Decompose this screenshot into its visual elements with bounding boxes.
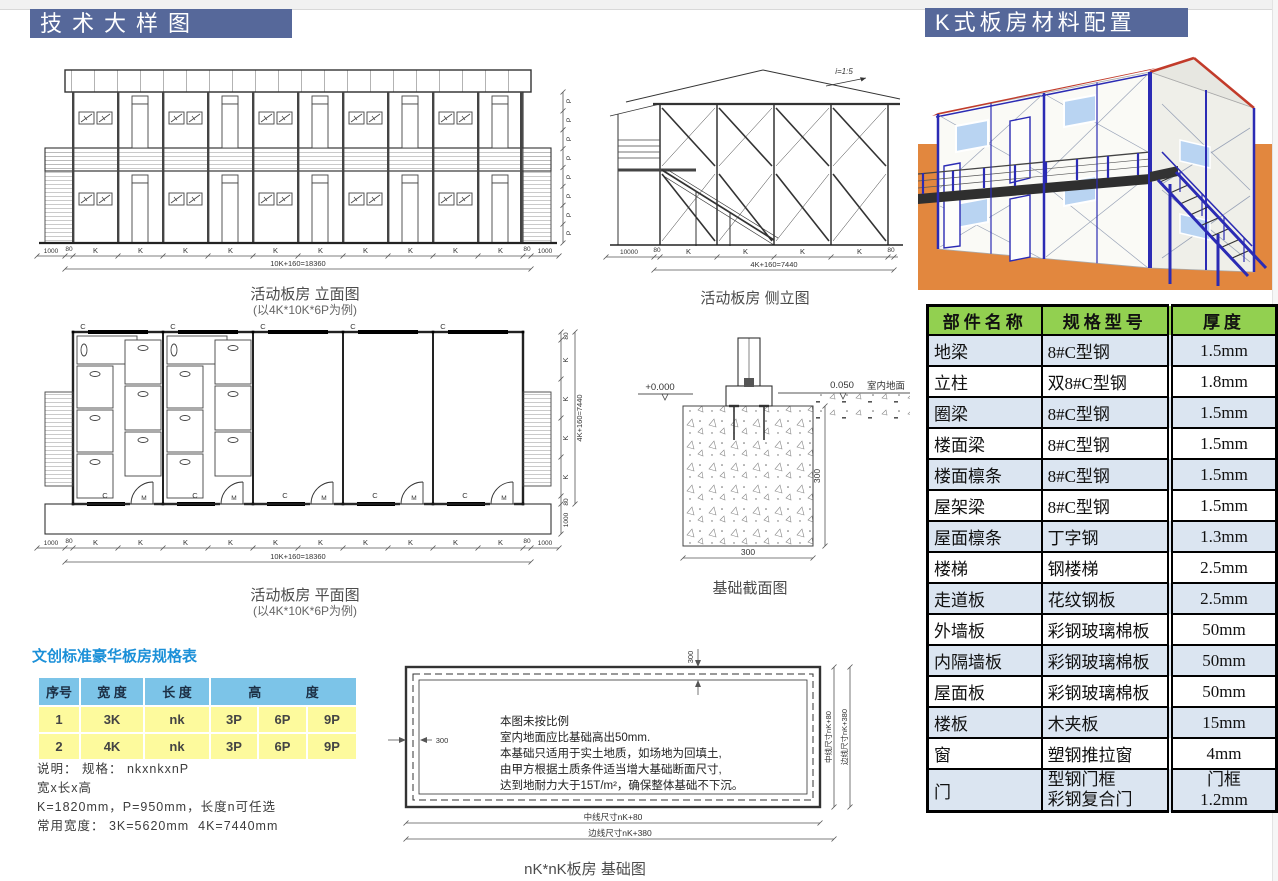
svg-text:C: C [170,322,176,331]
svg-text:K: K [453,538,458,547]
foundation-plan-svg: 300 300 本图未按比例 室内地面应比基础高出50mm. 本基础只适用于实土… [388,645,888,860]
svg-text:K: K [183,538,188,547]
part-cell: 圈梁 [928,397,1042,428]
svg-text:C: C [350,322,356,331]
svg-text:10000: 10000 [620,249,638,256]
svg-text:室内地面应比基础高出50mm.: 室内地面应比基础高出50mm. [500,730,650,744]
svg-text:80: 80 [563,498,570,506]
svg-text:室内地面: 室内地面 [867,380,905,392]
spec-cell: 彩钢玻璃棉板 [1042,614,1170,645]
spec-cell: 塑钢推拉窗 [1042,738,1170,769]
svg-text:K: K [228,246,233,255]
svg-text:C: C [372,491,378,500]
spec-table-header: 序号 宽 度 长 度 高 度 [38,677,357,706]
part-cell: 楼面梁 [928,428,1042,459]
svg-text:1000: 1000 [44,248,59,255]
svg-text:300: 300 [686,651,695,664]
part-cell: 窗 [928,738,1042,769]
svg-text:0.050: 0.050 [830,380,854,391]
svg-text:P: P [566,137,573,141]
svg-text:K: K [228,538,233,547]
svg-text:10K+160=18360: 10K+160=18360 [270,552,325,561]
dimension-right-p-labels: P P P P P P P P [566,99,573,235]
table-row: 内隔墙板 彩钢玻璃棉板 50mm [928,645,1277,676]
svg-text:K: K [183,246,188,255]
svg-text:K: K [93,538,98,547]
thickness-cell: 50mm [1170,676,1277,707]
part-cell: 屋面檩条 [928,521,1042,552]
svg-text:K: K [408,246,413,255]
svg-text:K: K [561,435,570,440]
thickness-cell: 1.5mm [1170,335,1277,366]
height-cell: 6P [258,733,307,760]
width-cell: 4K [80,733,144,760]
table-row: 屋面檩条 丁字钢 1.3mm [928,521,1277,552]
svg-text:P: P [566,156,573,160]
slope-callout: i=1:5 [826,67,866,86]
svg-text:K: K [318,538,323,547]
col-spec-header: 规格型号 [1042,306,1170,336]
table-row: 楼梯 钢楼梯 2.5mm [928,552,1277,583]
foundation-plan-caption: nK*nK板房 基础图 [420,858,750,879]
spec-line-1: 型钢门框 [1048,770,1162,790]
height-cell: 3P [210,706,258,733]
svg-text:K: K [363,246,368,255]
thickness-cell: 15mm [1170,707,1277,738]
svg-text:80: 80 [563,332,570,340]
spec-note-line: K=1820mm，P=950mm，长度n可任选 [37,798,278,817]
plan-stairs [45,392,551,486]
part-cell: 屋架梁 [928,490,1042,521]
svg-text:1000: 1000 [538,248,553,255]
building-render-svg [918,44,1272,290]
svg-text:10K+160=18360: 10K+160=18360 [270,259,325,268]
svg-text:+0.000: +0.000 [645,382,674,393]
elevation-drawing-svg: 1000 80 KK KK KK KK KK 80 1000 10K+160=1… [25,52,583,282]
svg-text:K: K [561,396,570,401]
svg-text:本图未按比例: 本图未按比例 [500,714,569,728]
svg-text:K: K [561,357,570,362]
height-cell: 6P [258,706,307,733]
svg-text:4K+160=7440: 4K+160=7440 [575,394,583,441]
spec-line-2: 彩钢复合门 [1048,790,1162,810]
svg-text:K: K [800,247,805,256]
spec-note-line: 说明： 规格： nkxnkxnP [37,760,278,779]
height-cell: 9P [307,706,357,733]
height-cell: 3P [210,733,258,760]
col-height-header: 高 度 [210,677,357,706]
svg-text:P: P [566,213,573,217]
frame-columns [618,104,888,245]
svg-text:K: K [408,538,413,547]
table-row: 窗 塑钢推拉窗 4mm [928,738,1277,769]
table-row: 屋面板 彩钢玻璃棉板 50mm [928,676,1277,707]
col-no-header: 序号 [38,677,80,706]
section-title-left: 技术大样图 [30,9,292,38]
col-thickness-header: 厚度 [1170,306,1277,336]
width-cell: 3K [80,706,144,733]
part-cell: 屋面板 [928,676,1042,707]
svg-text:中线尺寸nK+80: 中线尺寸nK+80 [584,812,643,822]
svg-text:由甲方根据土质条件适当增大基础断面尺寸,: 由甲方根据土质条件适当增大基础断面尺寸, [500,762,722,776]
svg-text:M: M [411,495,416,502]
spec-cell: 钢楼梯 [1042,552,1170,583]
svg-text:i=1:5: i=1:5 [835,67,853,76]
svg-text:80: 80 [65,246,73,253]
svg-text:M: M [231,495,236,502]
spec-note-line: 常用宽度： 3K=5620mm 4K=7440mm [37,817,278,836]
footing-block [683,406,813,546]
svg-text:P: P [566,99,573,103]
table-row: 外墙板 彩钢玻璃棉板 50mm [928,614,1277,645]
dim-height [823,404,828,549]
svg-text:P: P [566,231,573,235]
table-row: 楼板 木夹板 15mm [928,707,1277,738]
column [726,338,772,406]
table-row: 地梁 8#C型钢 1.5mm [928,335,1277,366]
dimension-right-labels: 80 K K K K 80 1000 4K+160=7440 [561,332,583,527]
svg-text:4K+160=7440: 4K+160=7440 [750,260,797,269]
dim-left-300: 300 [388,736,448,745]
spec-cell: 木夹板 [1042,707,1170,738]
svg-text:K: K [273,246,278,255]
thickness-cell: 50mm [1170,614,1277,645]
svg-text:P: P [566,175,573,179]
svg-text:中线尺寸nK+80: 中线尺寸nK+80 [823,711,833,763]
thickness-cell: 1.5mm [1170,397,1277,428]
dimension-bottom-labels: 10000 80 KK KK 80 4K+160=7440 [620,247,895,269]
part-cell: 楼梯 [928,552,1042,583]
svg-text:K: K [561,474,570,479]
spec-cell: 8#C型钢 [1042,459,1170,490]
zero-level: +0.000 [638,382,693,400]
col-part-header: 部件名称 [928,306,1042,336]
table-row: 楼面梁 8#C型钢 1.5mm [928,428,1277,459]
spec-cell: 彩钢玻璃棉板 [1042,645,1170,676]
svg-text:P: P [566,194,573,198]
svg-text:K: K [498,246,503,255]
svg-text:1000: 1000 [538,540,553,547]
spec-cell: 8#C型钢 [1042,397,1170,428]
svg-text:C: C [102,491,108,500]
col-width-header: 宽 度 [80,677,144,706]
thickness-cell: 1.5mm [1170,490,1277,521]
svg-text:K: K [318,246,323,255]
table-row: 屋架梁 8#C型钢 1.5mm [928,490,1277,521]
table-row: 圈梁 8#C型钢 1.5mm [928,397,1277,428]
table-row: 1 3K nk 3P 6P 9P [38,706,357,733]
length-cell: nk [144,733,210,760]
table-row: 楼面檩条 8#C型钢 1.5mm [928,459,1277,490]
spec-cell: 型钢门框 彩钢复合门 [1042,769,1170,812]
svg-text:1000: 1000 [44,540,59,547]
svg-text:C: C [462,491,468,500]
svg-text:达到地耐力大于15T/m²，确保整体基础不下沉。: 达到地耐力大于15T/m²，确保整体基础不下沉。 [500,778,743,792]
thickness-line-1: 门框 [1178,770,1270,790]
part-cell: 楼面檩条 [928,459,1042,490]
length-cell: nk [144,706,210,733]
slide-page: 技术大样图 K式板房材料配置 [0,0,1278,881]
thickness-cell: 2.5mm [1170,583,1277,614]
dimension-right-p [561,90,566,246]
svg-text:K: K [138,246,143,255]
thickness-cell: 1.8mm [1170,366,1277,397]
side-elevation-svg: i=1:5 [598,50,916,285]
svg-text:K: K [453,246,458,255]
thickness-cell: 2.5mm [1170,552,1277,583]
section-title-right: K式板房材料配置 [925,8,1188,37]
spec-cell: 彩钢玻璃棉板 [1042,676,1170,707]
svg-text:80: 80 [887,247,895,254]
table-row: 走道板 花纹钢板 2.5mm [928,583,1277,614]
svg-text:P: P [566,118,573,122]
svg-text:C: C [192,491,198,500]
no-cell: 1 [38,706,80,733]
svg-text:M: M [321,495,326,502]
svg-text:M: M [501,495,506,502]
svg-text:边线尺寸nK+380: 边线尺寸nK+380 [588,828,652,838]
spec-cell: 丁字钢 [1042,521,1170,552]
svg-text:1000: 1000 [563,512,570,527]
stair-flight [662,170,778,246]
side-elevation-caption: 活动板房 侧立图 [600,287,910,308]
spec-note-line: 宽x长x高 [37,779,278,798]
dim-bottom-labels: 中线尺寸nK+80 边线尺寸nK+380 [584,812,652,838]
table-row-door: 门 型钢门框 彩钢复合门 门框 1.2mm [928,769,1277,812]
part-cell: 门 [928,769,1042,812]
thickness-cell: 1.5mm [1170,428,1277,459]
spec-table: 序号 宽 度 长 度 高 度 1 3K nk 3P 6P 9P 2 4K nk … [37,676,358,761]
roof [610,70,900,116]
spec-cell: 8#C型钢 [1042,490,1170,521]
roof-band [65,70,531,92]
svg-text:80: 80 [653,247,661,254]
thickness-cell: 4mm [1170,738,1277,769]
thickness-cell: 1.5mm [1170,459,1277,490]
spec-cell: 双8#C型钢 [1042,366,1170,397]
col-height-label-2: 度 [306,682,319,701]
svg-text:C: C [440,322,446,331]
thickness-cell: 1.3mm [1170,521,1277,552]
dim-top-300: 300 [686,649,701,695]
part-cell: 立柱 [928,366,1042,397]
landing [618,140,696,170]
spec-cell: 花纹钢板 [1042,583,1170,614]
thickness-cell: 50mm [1170,645,1277,676]
svg-text:K: K [857,247,862,256]
col-length-header: 长 度 [144,677,210,706]
table-row: 2 4K nk 3P 6P 9P [38,733,357,760]
no-cell: 2 [38,733,80,760]
spec-cell: 8#C型钢 [1042,335,1170,366]
svg-text:K: K [743,247,748,256]
svg-text:本基础只适用于实土地质，如场地为回填土,: 本基础只适用于实土地质，如场地为回填土, [500,746,722,760]
part-cell: 楼板 [928,707,1042,738]
svg-text:K: K [138,538,143,547]
svg-text:C: C [282,491,288,500]
foundation-notes: 本图未按比例 室内地面应比基础高出50mm. 本基础只适用于实土地质，如场地为回… [500,714,743,792]
svg-text:80: 80 [65,538,73,545]
svg-text:300: 300 [436,736,449,745]
material-table: 部件名称 规格型号 厚度 地梁 8#C型钢 1.5mm 立柱 双8#C型钢 1.… [926,304,1278,813]
svg-text:K: K [273,538,278,547]
elevation-subcaption: (以4K*10K*6P为例) [30,301,580,318]
table-row: 立柱 双8#C型钢 1.8mm [928,366,1277,397]
dim-width-label: 300 [741,547,755,557]
porch-slab [45,504,551,534]
part-cell: 外墙板 [928,614,1042,645]
foundation-section-caption: 基础截面图 [590,577,910,598]
part-cell: 走道板 [928,583,1042,614]
plan-subcaption: (以4K*10K*6P为例) [30,602,580,619]
height-cell: 9P [307,733,357,760]
thickness-line-2: 1.2mm [1178,790,1270,810]
svg-text:80: 80 [523,246,531,253]
spec-table-title: 文创标准豪华板房规格表 [32,645,197,666]
svg-text:C: C [80,322,86,331]
svg-text:K: K [93,246,98,255]
thickness-cell: 门框 1.2mm [1170,769,1277,812]
svg-text:K: K [498,538,503,547]
svg-text:M: M [141,495,146,502]
dimension-bottom-labels: 1000 80 KK KK KK KK KK 80 1000 10K+160=1… [44,246,553,268]
floor-plan-svg: CC CC C CC CC C MM MM M 1000 80 KK [25,318,583,580]
dim-right-labels: 中线尺寸nK+80 边线尺寸nK+380 [823,709,849,765]
svg-text:80: 80 [523,538,531,545]
svg-text:边线尺寸nK+380: 边线尺寸nK+380 [839,709,849,765]
col-height-label-1: 高 [248,682,261,701]
material-table-header: 部件名称 规格型号 厚度 [928,306,1277,336]
svg-text:K: K [363,538,368,547]
foundation-section-svg: 0.050 室内地面 +0.000 300 300 [618,328,918,573]
spec-notes: 说明： 规格： nkxnkxnP 宽x长x高 K=1820mm，P=950mm，… [37,760,278,836]
dim-height-label: 300 [812,469,822,483]
svg-text:K: K [686,247,691,256]
spec-cell: 8#C型钢 [1042,428,1170,459]
part-cell: 内隔墙板 [928,645,1042,676]
part-cell: 地梁 [928,335,1042,366]
svg-text:C: C [260,322,266,331]
